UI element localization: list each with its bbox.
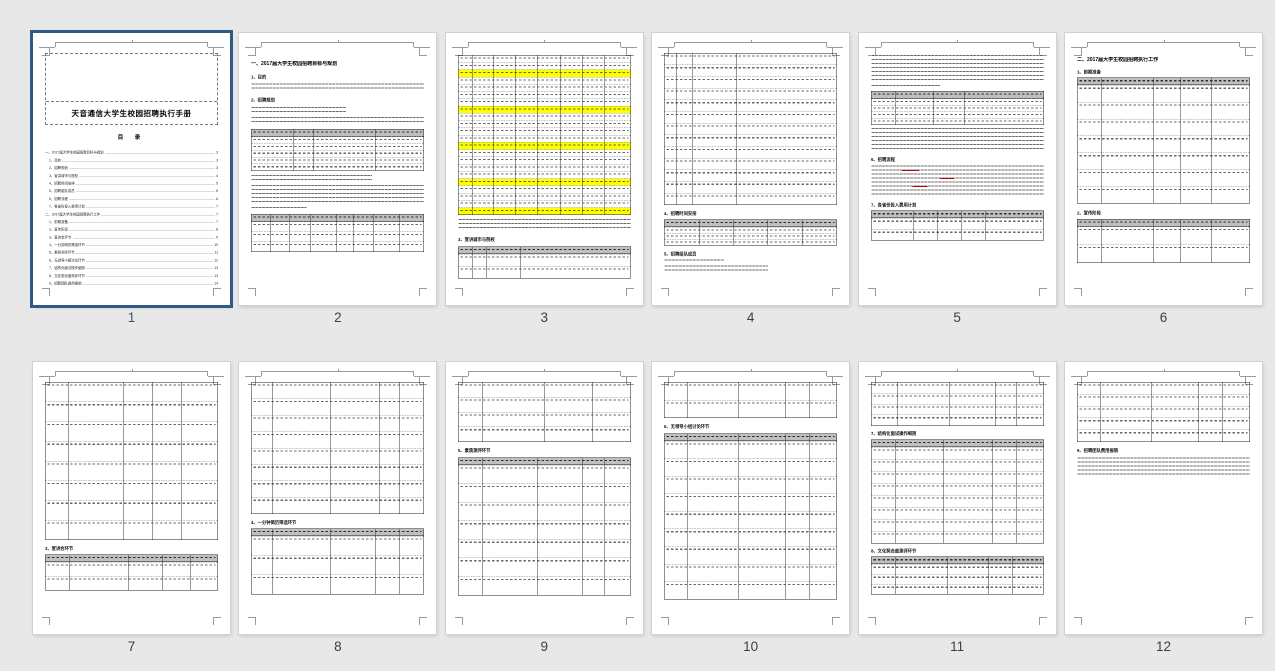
mini-table-column-line [895, 440, 896, 543]
page-content: 6、无领导小组讨论环节 [664, 382, 837, 617]
mini-table-row [46, 562, 218, 576]
page-thumbnail-7[interactable]: 3、宣讲会环节7 [33, 362, 230, 634]
mini-table-header-text [667, 436, 835, 437]
mini-table-row [665, 88, 837, 100]
header-bracket-icon [865, 40, 1050, 49]
mini-table-column-line [1016, 383, 1017, 426]
mini-table-row [252, 150, 424, 157]
toc-entry-label: 3、宣讲城市与院校 [45, 173, 78, 178]
mini-table-row [458, 266, 630, 278]
header-bracket-icon [658, 40, 843, 49]
page-number-label: 8 [239, 639, 436, 654]
mini-table-column-line [1181, 78, 1182, 203]
toc-leader [80, 176, 215, 177]
mini-table-row [665, 111, 837, 123]
page-thumbnail-9[interactable]: 5、素质测评环节9 [446, 362, 643, 634]
mini-table-row-text [1080, 247, 1248, 248]
mini-table-row [871, 495, 1043, 507]
mini-table-row [665, 158, 837, 170]
mini-table-row [665, 181, 837, 193]
toc-page-number: 4 [216, 174, 218, 178]
page-thumbnail-5[interactable]: 6、招聘流程7、各省份投入费用计划5 [859, 33, 1056, 305]
page-number-label: 10 [652, 639, 849, 654]
mini-table-header-row [46, 555, 218, 562]
mini-table-row-text [460, 166, 628, 167]
header-bracket-icon [452, 369, 637, 378]
mini-table-row-text [460, 137, 628, 138]
mini-table-row-text [667, 229, 835, 230]
crop-mark-icon [868, 617, 876, 625]
mini-table-row [665, 170, 837, 182]
mini-table-row [665, 400, 837, 418]
mini-table-row-text [1080, 121, 1248, 122]
mini-table-row-text [48, 444, 216, 445]
page-sheet: 3、宣讲城市与院校 [446, 33, 643, 305]
mini-heading: 7、各省份投入费用计划 [871, 202, 1044, 207]
mini-table-row-text [667, 402, 835, 403]
crop-mark-icon [213, 617, 221, 625]
mini-table-column-line [472, 56, 473, 215]
mini-table-row-text [254, 244, 422, 245]
mini-table-column-line [520, 247, 521, 278]
mini-table [1077, 78, 1250, 204]
crop-mark-icon [455, 617, 463, 625]
crop-mark-icon [661, 617, 669, 625]
mini-heading: 9、招聘团队费用报销 [1077, 448, 1250, 453]
mini-table-column-line [985, 211, 986, 240]
mini-table-column-line [995, 383, 996, 426]
mini-table-row-text [667, 549, 835, 550]
mini-table-row-text [1080, 155, 1248, 156]
mini-table-row [665, 581, 837, 599]
crop-mark-icon [1074, 617, 1082, 625]
header-bracket-segment [1164, 40, 1165, 42]
header-bracket-segment [132, 40, 133, 42]
header-bracket-segment [751, 369, 752, 371]
mini-table-row-text [1080, 138, 1248, 139]
mini-table-column-line [152, 383, 153, 540]
header-bracket-segment [55, 42, 208, 43]
mini-table-body [252, 129, 424, 170]
mini-heading: 4、一分钟简历筛选环节 [251, 520, 424, 525]
mini-table-column-line [582, 56, 583, 215]
mini-table-body [46, 383, 218, 540]
mini-table [458, 55, 631, 215]
header-bracket-icon [245, 369, 430, 378]
page-sheet: 9、招聘团队费用报销 [1065, 362, 1262, 634]
toc-leader [86, 207, 214, 208]
mini-table-row [252, 497, 424, 513]
mini-table-column-line [70, 555, 71, 590]
mini-table-row-text [460, 181, 628, 182]
mini-table-column-line [1102, 78, 1103, 203]
crop-mark-icon [626, 617, 634, 625]
mini-table-row [1078, 186, 1250, 203]
page-thumbnail-4[interactable]: 4、招聘时间安排5、招聘组队成员4 [652, 33, 849, 305]
mini-table-header-text [873, 559, 1041, 560]
mini-table [871, 211, 1044, 241]
page-content: 一、2017届大学生校园招聘目标与规划1、目的2、招聘规划 [251, 53, 424, 288]
header-bracket-segment [1239, 42, 1240, 47]
mini-table-row [252, 536, 424, 555]
header-bracket-segment [55, 371, 208, 372]
mini-table-row [1078, 85, 1250, 102]
toc-list: 一、2017届大学生校园招聘目标与规划31、目的32、招聘规划33、宣讲城市与院… [45, 147, 218, 286]
header-bracket-segment [261, 42, 262, 47]
toc-entry-label: 6、招聘流程 [45, 196, 68, 201]
mini-table-column-line [162, 555, 163, 590]
mini-table-row [665, 546, 837, 564]
mini-table [251, 382, 424, 514]
toc-entry-label: 6、无领导小组讨论环节 [45, 257, 85, 262]
mini-table-body [871, 92, 1043, 125]
toc-entry: 6、无领导小组讨论环节12 [45, 255, 218, 263]
mini-table-row [665, 511, 837, 529]
mini-table [664, 53, 837, 205]
mini-heading: 4、招聘时间安排 [664, 211, 837, 216]
mini-table-row-text [667, 584, 835, 585]
toc-entry-label: 2、招聘规划 [45, 165, 68, 170]
mini-table-row [871, 531, 1043, 543]
mini-paragraph [251, 185, 424, 205]
toc-entry-label: 二、2017届大学生校园招聘执行工作 [45, 211, 100, 216]
toc-leader [86, 261, 212, 262]
mini-table-row-text [460, 467, 628, 468]
mini-table-row-text [48, 483, 216, 484]
mini-table-header-text [873, 94, 1041, 95]
mini-table [45, 554, 218, 590]
page-sheet: 6、招聘流程7、各省份投入费用计划 [859, 33, 1056, 305]
toc-leader [86, 246, 212, 247]
header-bracket-segment [468, 371, 469, 376]
crop-mark-icon [455, 288, 463, 296]
page-thumbnail-12[interactable]: 9、招聘团队费用报销12 [1065, 362, 1262, 634]
mini-table-row [871, 229, 1043, 240]
mini-table-column-line [1153, 219, 1154, 262]
mini-table-column-line [988, 557, 989, 594]
crop-mark-icon [626, 288, 634, 296]
mini-table-body [458, 247, 630, 278]
mini-table-row-text [460, 108, 628, 109]
mini-table-row-text [254, 558, 422, 559]
crop-mark-icon [832, 288, 840, 296]
mini-table-header-text [1080, 221, 1248, 222]
header-bracket-icon [39, 369, 224, 378]
mini-table-row [252, 143, 424, 150]
mini-table-row-text [667, 496, 835, 497]
mini-paragraph [871, 128, 1044, 152]
toc-leader [76, 192, 214, 193]
mini-heading: 二、2017届大学生校园招聘执行工作 [1077, 57, 1250, 63]
mini-heading: 3、宣讲会环节 [45, 546, 218, 551]
toc-page-number: 8 [216, 228, 218, 232]
mini-heading: 6、无领导小组讨论环节 [664, 424, 837, 429]
mini-table [871, 91, 1044, 125]
mini-table-column-line [1100, 383, 1101, 442]
mini-table-row-text [667, 385, 835, 386]
red-underline-mark [902, 170, 919, 171]
toc-leader [76, 184, 214, 185]
mini-table-row [46, 500, 218, 520]
mini-table-row-text [667, 241, 835, 242]
mini-table-column-line [560, 56, 561, 215]
mini-table-body [871, 440, 1043, 543]
header-bracket-segment [620, 42, 621, 47]
crop-mark-icon [42, 288, 50, 296]
header-bracket-segment [1164, 369, 1165, 371]
page-content: 6、招聘流程7、各省份投入费用计划 [871, 53, 1044, 288]
mini-table-row-text [873, 121, 1041, 122]
mini-table-column-line [472, 247, 473, 278]
mini-table-row-text [873, 232, 1041, 233]
mini-table-column-line [1153, 78, 1154, 203]
mini-table-row-text [460, 58, 628, 59]
header-bracket-segment [826, 42, 827, 47]
mini-table-row-text [460, 210, 628, 211]
toc-entry: 5、招聘组队成员5 [45, 185, 218, 193]
mini-table [45, 382, 218, 540]
mini-paragraph [871, 165, 1044, 197]
mini-table-row-text [460, 195, 628, 196]
mini-table-row [252, 231, 424, 241]
title-box: 天音通信大学生校园招聘执行手册 [45, 53, 218, 125]
mini-table-column-line [1198, 383, 1199, 442]
mini-table-row [46, 383, 218, 402]
header-bracket-segment [826, 371, 827, 376]
mini-table [458, 457, 631, 595]
mini-table-header-row [871, 440, 1043, 447]
mini-heading: 7、结构化面试操作细则 [871, 431, 1044, 436]
mini-table-column-line [947, 557, 948, 594]
header-bracket-icon [865, 369, 1050, 378]
crop-mark-icon [868, 288, 876, 296]
mini-table [1077, 382, 1250, 442]
toc-page-number: 5 [216, 182, 218, 186]
toc-entry: 5、素质测评环节11 [45, 247, 218, 255]
mini-table-row-text [254, 577, 422, 578]
mini-table-row-text [254, 483, 422, 484]
mini-table-row-text [873, 587, 1041, 588]
toc-entry: 4、招聘时间安排5 [45, 178, 218, 186]
mini-paragraph [1077, 457, 1250, 477]
mini-table-column-line [897, 383, 898, 426]
mini-table-row [1078, 430, 1250, 442]
page-thumbnail-8[interactable]: 4、一分钟简历筛选环节8 [239, 362, 436, 634]
mini-table-column-line [604, 458, 605, 595]
page-thumbnail-3[interactable]: 3、宣讲城市与院校3 [446, 33, 643, 305]
mini-table-row-text [48, 385, 216, 386]
toc-entry-label: 3、宣讲会环节 [45, 234, 71, 239]
crop-mark-icon [248, 288, 256, 296]
mini-table-column-line [1212, 78, 1213, 203]
mini-table-row [871, 218, 1043, 229]
page-sheet: 一、2017届大学生校园招聘目标与规划1、目的2、招聘规划 [239, 33, 436, 305]
page-sheet: 6、无领导小组讨论环节 [652, 362, 849, 634]
header-bracket-segment [132, 369, 133, 371]
header-bracket-segment [55, 371, 56, 376]
mini-table-row [665, 239, 837, 245]
mini-table-row-text [48, 463, 216, 464]
mini-table-row [871, 519, 1043, 531]
mini-table-row [665, 441, 837, 459]
mini-table-row [1078, 153, 1250, 170]
red-underline-mark [912, 186, 927, 187]
toc-entry: 4、一分钟简历筛选环节10 [45, 239, 218, 247]
crop-mark-icon [213, 288, 221, 296]
mini-table-row [665, 494, 837, 512]
page-thumbnail-10[interactable]: 6、无领导小组讨论环节10 [652, 362, 849, 634]
mini-table-body [665, 434, 837, 599]
page-sheet: 7、结构化面试操作细则8、文化契合度测评环节 [859, 362, 1056, 634]
mini-table-row-text [254, 234, 422, 235]
mini-table-row-text [873, 567, 1041, 568]
mini-table-row-text [873, 221, 1041, 222]
mini-table-row-text [460, 116, 628, 117]
mini-table-header-row [871, 92, 1043, 99]
mini-heading: 6、招聘流程 [871, 157, 1044, 162]
page-content: 3、宣讲城市与院校 [458, 53, 631, 288]
mini-table-row-text [667, 566, 835, 567]
mini-table-column-line [604, 56, 605, 215]
mini-table-row-text [460, 560, 628, 561]
mini-table-column-line [123, 383, 124, 540]
toc-page-number: 3 [216, 167, 218, 171]
mini-table-row-text [460, 152, 628, 153]
page-number-label: 11 [859, 639, 1056, 654]
mini-table-column-line [1222, 383, 1223, 442]
mini-table-row [1078, 394, 1250, 406]
crop-mark-icon [832, 617, 840, 625]
mini-table-row [665, 529, 837, 547]
toc-entry-label: 7、结构化面试操作细则 [45, 265, 85, 270]
mini-table-row [252, 481, 424, 497]
mini-table-row [871, 118, 1043, 125]
mini-table-body [665, 54, 837, 205]
mini-table-header-row [871, 557, 1043, 564]
mini-table-row-text [460, 65, 628, 66]
mini-table-row-text [1080, 104, 1248, 105]
mini-table-row [252, 164, 424, 171]
mini-table-row [46, 520, 218, 540]
mini-paragraph [251, 107, 346, 115]
toc-leader [83, 284, 213, 285]
header-bracket-segment [1239, 371, 1240, 376]
page-content: 天音通信大学生校园招聘执行手册目 录一、2017届大学生校园招聘目标与规划31、… [45, 53, 218, 288]
mini-table-row [46, 402, 218, 422]
toc-page-number: 3 [216, 151, 218, 155]
mini-table [664, 382, 837, 418]
mini-table-header-text [460, 460, 628, 461]
crop-mark-icon [1039, 617, 1047, 625]
mini-table-column-line [592, 383, 593, 442]
mini-table-column-line [582, 458, 583, 595]
mini-table-row [458, 254, 630, 266]
mini-table-row-text [667, 235, 835, 236]
toc-entry: 8、文化契合度测评环节13 [45, 270, 218, 278]
mini-table-column-line [181, 383, 182, 540]
toc-leader [69, 169, 214, 170]
page-number-label: 1 [33, 310, 230, 325]
toc-entry-label: 一、2017届大学生校园招聘目标与规划 [45, 150, 104, 155]
page-sheet: 4、一分钟简历筛选环节 [239, 362, 436, 634]
page-sheet: 5、素质测评环节 [446, 362, 643, 634]
toc-entry-label: 8、文化契合度测评环节 [45, 273, 85, 278]
mini-table-column-line [190, 555, 191, 590]
mini-table-body [871, 557, 1043, 594]
mini-table-row-text [254, 538, 422, 539]
page-thumbnail-1[interactable]: 天音通信大学生校园招聘执行手册目 录一、2017届大学生校园招聘目标与规划31、… [33, 33, 230, 305]
toc-entry-label: 7、各省份投入费用计划 [45, 204, 85, 209]
mini-table-row-text [254, 159, 422, 160]
page-thumbnail-2[interactable]: 一、2017届大学生校园招聘目标与规划1、目的2、招聘规划2 [239, 33, 436, 305]
mini-table-row [871, 564, 1043, 574]
mini-table [251, 528, 424, 594]
mini-table-body [1078, 219, 1250, 262]
mini-table-header-row [252, 129, 424, 136]
crop-mark-icon [42, 617, 50, 625]
mini-table-body [46, 555, 218, 590]
mini-table-body [871, 211, 1043, 240]
mini-table-row [871, 574, 1043, 584]
header-bracket-segment [468, 42, 469, 47]
mini-heading: 2、宣传阶段 [1077, 211, 1250, 216]
page-thumbnail-6[interactable]: 二、2017届大学生校园招聘执行工作1、前期准备2、宣传阶段6 [1065, 33, 1262, 305]
mini-table-row [252, 431, 424, 447]
header-bracket-segment [261, 371, 414, 372]
mini-table-row-text [254, 224, 422, 225]
mini-table-row-text [460, 203, 628, 204]
mini-table-header-text [1080, 80, 1248, 81]
mini-heading: 5、招聘组队成员 [664, 251, 837, 256]
header-bracket-segment [674, 42, 675, 47]
mini-table-row [252, 415, 424, 431]
header-bracket-icon [658, 369, 843, 378]
mini-heading: 8、文化契合度测评环节 [871, 548, 1044, 553]
mini-table-row [252, 555, 424, 574]
page-content: 9、招聘团队费用报销 [1077, 382, 1250, 617]
mini-table-header-text [254, 531, 422, 532]
mini-table-row-text [667, 514, 835, 515]
toc-page-number: 6 [216, 197, 218, 201]
mini-table-row [665, 458, 837, 476]
mini-table-row-text [460, 87, 628, 88]
mini-paragraph [458, 219, 631, 231]
mini-table-row-text [460, 130, 628, 131]
toc-page-number: 5 [216, 190, 218, 194]
header-bracket-segment [620, 371, 621, 376]
mini-paragraph [251, 175, 372, 183]
mini-table-column-line [961, 211, 962, 240]
header-bracket-segment [674, 371, 827, 372]
mini-table-column-line [544, 383, 545, 442]
mini-table-row [46, 421, 218, 441]
crop-mark-icon [1039, 288, 1047, 296]
mini-heading: 2、招聘规划 [251, 98, 424, 103]
page-thumbnail-11[interactable]: 7、结构化面试操作细则8、文化契合度测评环节11 [859, 362, 1056, 634]
mini-table-header-text [254, 131, 422, 132]
toc-entry-label: 1、前期准备 [45, 219, 68, 224]
mini-paragraph [664, 260, 725, 264]
mini-table-row [871, 459, 1043, 471]
header-bracket-segment [1033, 42, 1034, 47]
mini-table-row [1078, 383, 1250, 394]
thumbnail-pane: 天音通信大学生校园招聘执行手册目 录一、2017届大学生校园招聘目标与规划31、… [0, 0, 1275, 671]
header-bracket-segment [261, 42, 414, 43]
mini-table-row-text [460, 72, 628, 73]
mini-table-row [871, 483, 1043, 495]
mini-table-body [1078, 78, 1250, 203]
header-bracket-icon [452, 40, 637, 49]
